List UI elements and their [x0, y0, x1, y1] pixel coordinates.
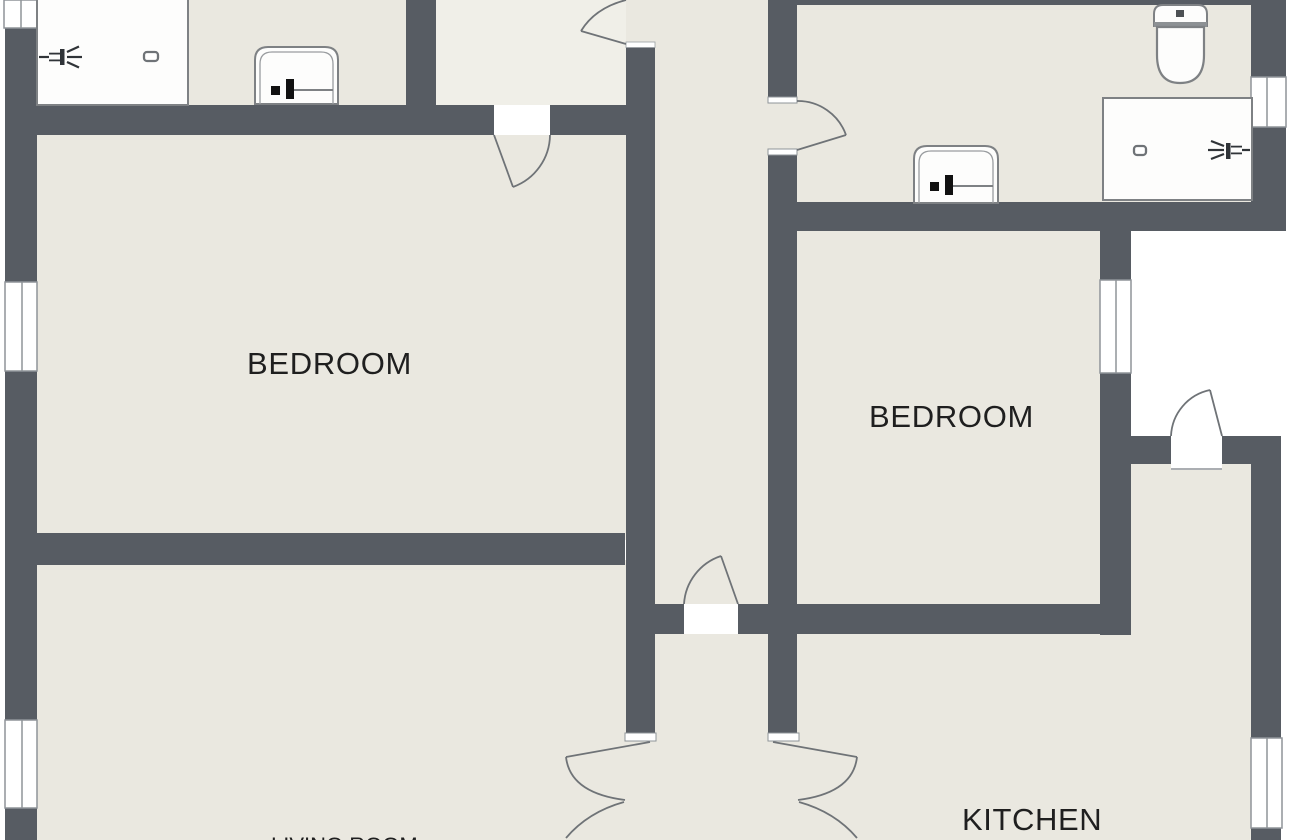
svg-text:KITCHEN: KITCHEN [962, 802, 1102, 837]
svg-text:BEDROOM: BEDROOM [247, 346, 412, 381]
svg-text:BEDROOM: BEDROOM [869, 399, 1034, 434]
svg-text:LIVING ROOM: LIVING ROOM [271, 833, 418, 840]
